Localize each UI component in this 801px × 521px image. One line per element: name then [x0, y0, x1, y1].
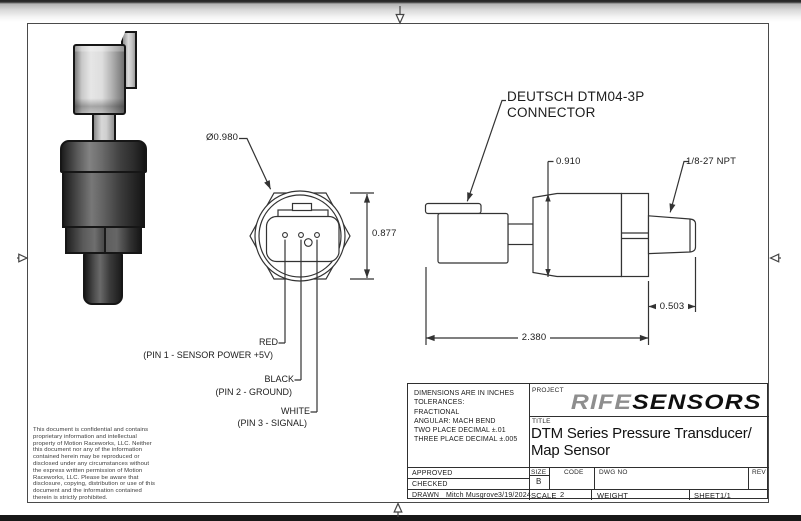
- code-label: CODE: [564, 469, 584, 476]
- pin3-desc-label: (PIN 3 - SIGNAL): [237, 419, 307, 428]
- tb-divider: [591, 489, 592, 501]
- scale-value: 2: [560, 490, 564, 499]
- thread-leader: [670, 162, 689, 213]
- overall-length-label: 2.380: [518, 333, 550, 343]
- size-value: B: [536, 477, 542, 486]
- render-neck: [92, 113, 116, 142]
- tolerance-line: DIMENSIONS ARE IN INCHES: [414, 389, 517, 398]
- pin2-wire-label: BLACK: [264, 375, 294, 384]
- drawn-date-value: 3/19/2024: [498, 492, 531, 499]
- drawing-title-line2: Map Sensor: [531, 442, 610, 459]
- thread-spec-label: 1/8-27 NPT: [686, 157, 736, 167]
- tolerance-line: THREE PLACE DECIMAL ±.005: [414, 435, 517, 444]
- tb-divider: [529, 384, 530, 500]
- tolerance-line: TWO PLACE DECIMAL ±.01: [414, 426, 517, 435]
- confidentiality-note: This document is confidential and contai…: [33, 427, 159, 502]
- pin3-wire-label: WHITE: [281, 407, 310, 416]
- front-view-linework: [239, 139, 374, 413]
- render-connector-body: [73, 44, 126, 115]
- pin1-desc-label: (PIN 1 - SENSOR POWER +5V): [143, 351, 273, 360]
- thread-length-label: 0.503: [656, 302, 688, 312]
- tb-divider: [408, 489, 769, 490]
- pin1-wire-label: RED: [259, 338, 278, 347]
- drawn-label: DRAWN: [412, 492, 439, 499]
- rife-sensors-logo: RIFESENSORS: [571, 391, 762, 415]
- front-diameter-label: Ø0.980: [206, 133, 238, 143]
- sheet-value: 1/1: [720, 491, 731, 500]
- tolerance-line: FRACTIONAL: [414, 408, 517, 417]
- scale-label: SCALE: [531, 491, 557, 500]
- sheet-label: SHEET: [694, 491, 720, 500]
- render-hex-facet-line: [104, 228, 106, 252]
- height-dimension: [350, 193, 374, 279]
- front-height-label: 0.877: [372, 229, 397, 239]
- render-npt-thread: [83, 252, 123, 305]
- render-upper-body: [60, 140, 147, 173]
- title-label: TITLE: [532, 418, 551, 425]
- drawing-title-line1: DTM Series Pressure Transducer/: [531, 425, 752, 442]
- title-block: DIMENSIONS ARE IN INCHES TOLERANCES: FRA…: [407, 383, 768, 499]
- size-label: SIZE: [531, 469, 546, 476]
- logo-rife: RIFE: [571, 391, 632, 414]
- tb-divider: [594, 467, 595, 489]
- tb-divider: [408, 467, 769, 468]
- connector-callout-line2: CONNECTOR: [507, 106, 596, 120]
- tolerance-line: TOLERANCES:: [414, 398, 517, 407]
- diameter-leader: [239, 139, 271, 190]
- tb-divider: [408, 478, 529, 479]
- drawn-by-value: Mitch Musgrove: [446, 492, 498, 499]
- checked-label: CHECKED: [412, 481, 448, 488]
- tolerance-notes: DIMENSIONS ARE IN INCHES TOLERANCES: FRA…: [414, 389, 517, 445]
- tolerance-line: ANGULAR: MACH BEND: [414, 417, 517, 426]
- tb-divider: [689, 489, 690, 501]
- approved-label: APPROVED: [412, 470, 453, 477]
- project-label: PROJECT: [532, 387, 564, 394]
- render-main-body: [62, 171, 145, 228]
- tb-divider: [529, 416, 769, 417]
- weight-label: WEIGHT: [597, 491, 628, 500]
- rev-label: REV: [752, 469, 766, 476]
- tb-divider: [748, 467, 749, 489]
- tb-divider: [549, 467, 550, 489]
- logo-sensors: SENSORS: [633, 391, 762, 414]
- connector-leader: [467, 101, 506, 202]
- side-view-linework: [426, 101, 696, 346]
- connector-callout-line1: DEUTSCH DTM04-3P: [507, 90, 644, 104]
- body-height-label: 0.910: [556, 157, 581, 167]
- dwg-no-label: DWG NO: [599, 469, 628, 476]
- pin2-desc-label: (PIN 2 - GROUND): [216, 388, 293, 397]
